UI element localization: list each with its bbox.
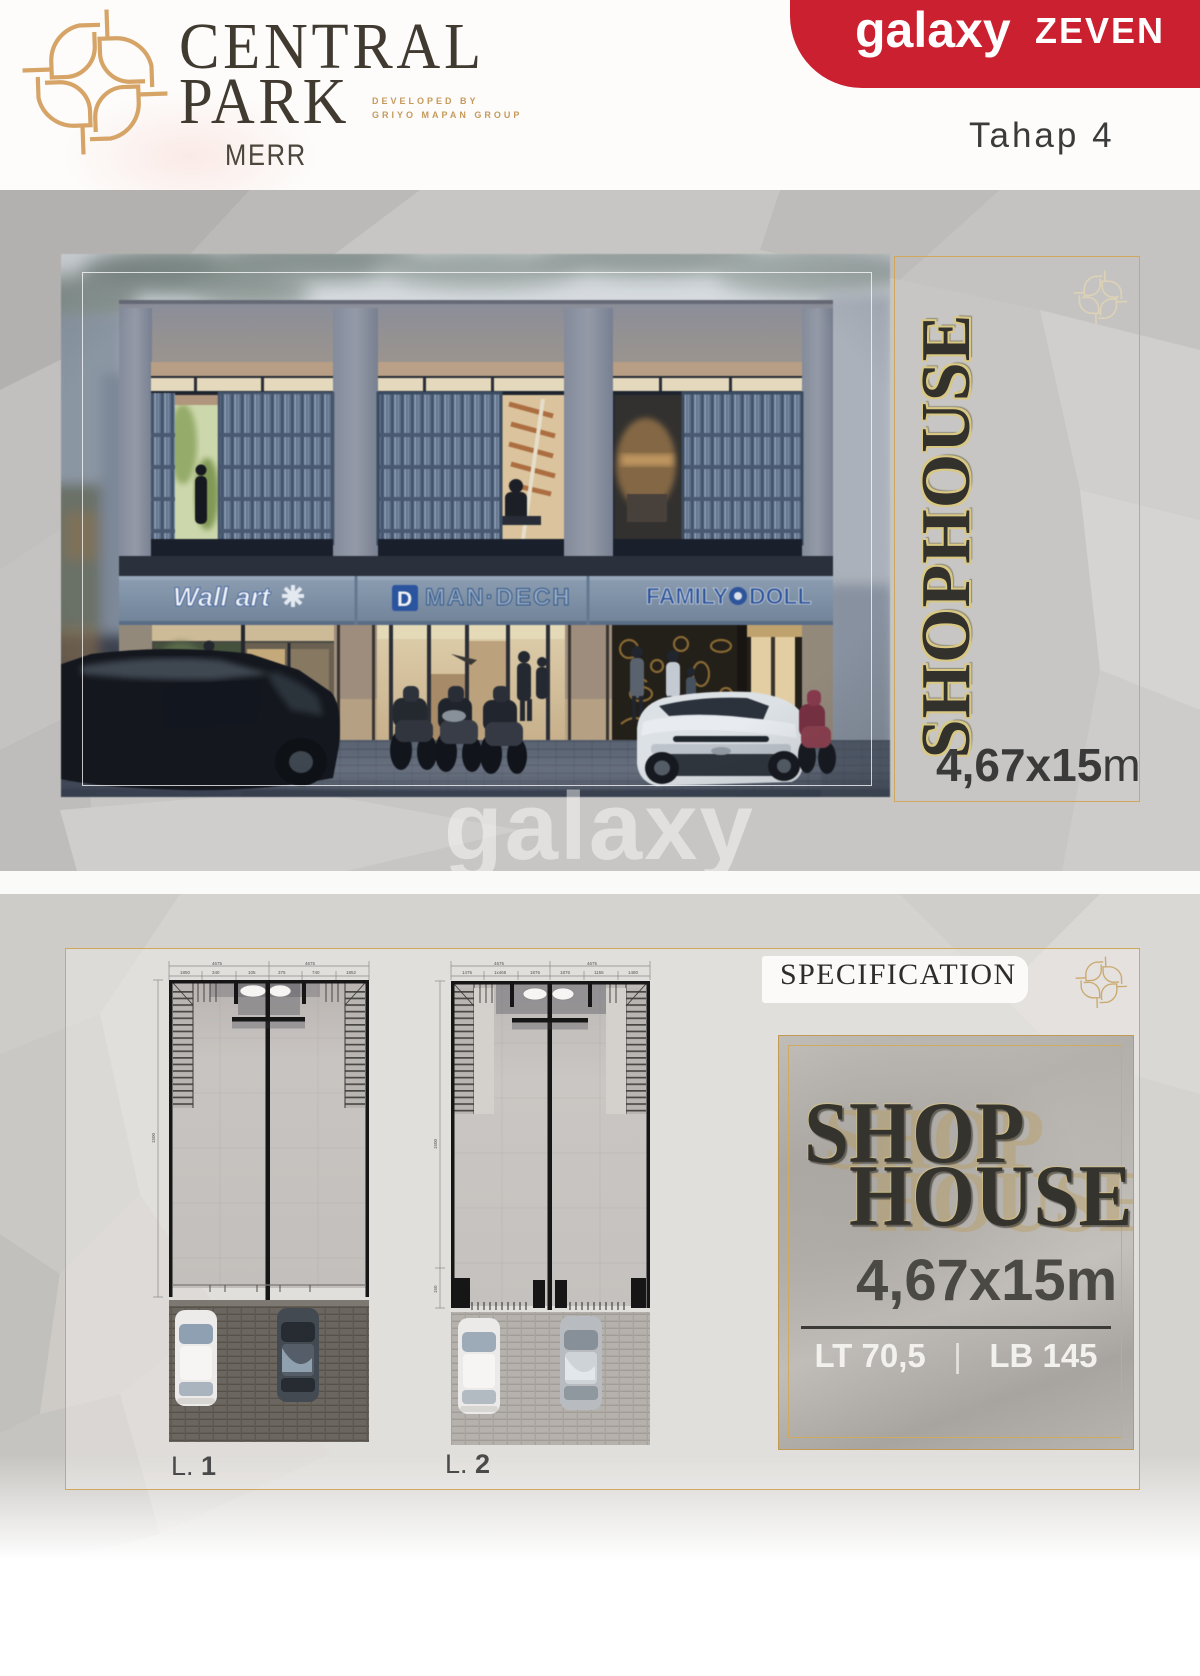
svg-text:1852: 1852 bbox=[346, 970, 357, 975]
svg-text:4675: 4675 bbox=[305, 961, 316, 966]
svg-text:1876: 1876 bbox=[560, 970, 571, 975]
svg-text:1850: 1850 bbox=[180, 970, 191, 975]
svg-text:1155: 1155 bbox=[594, 970, 604, 975]
svg-text:105: 105 bbox=[248, 970, 256, 975]
svg-text:1876: 1876 bbox=[530, 970, 541, 975]
svg-text:340: 340 bbox=[212, 970, 220, 975]
svg-text:4675: 4675 bbox=[494, 961, 505, 966]
svg-text:1x465: 1x465 bbox=[494, 970, 507, 975]
svg-text:1500: 1500 bbox=[151, 1132, 156, 1143]
svg-text:150: 150 bbox=[433, 1285, 438, 1293]
svg-text:4675: 4675 bbox=[212, 961, 223, 966]
svg-text:1475: 1475 bbox=[462, 970, 473, 975]
svg-text:375: 375 bbox=[278, 970, 286, 975]
svg-text:740: 740 bbox=[312, 970, 320, 975]
svg-text:1480: 1480 bbox=[628, 970, 639, 975]
svg-text:4675: 4675 bbox=[587, 961, 598, 966]
svg-text:1500: 1500 bbox=[433, 1138, 438, 1149]
